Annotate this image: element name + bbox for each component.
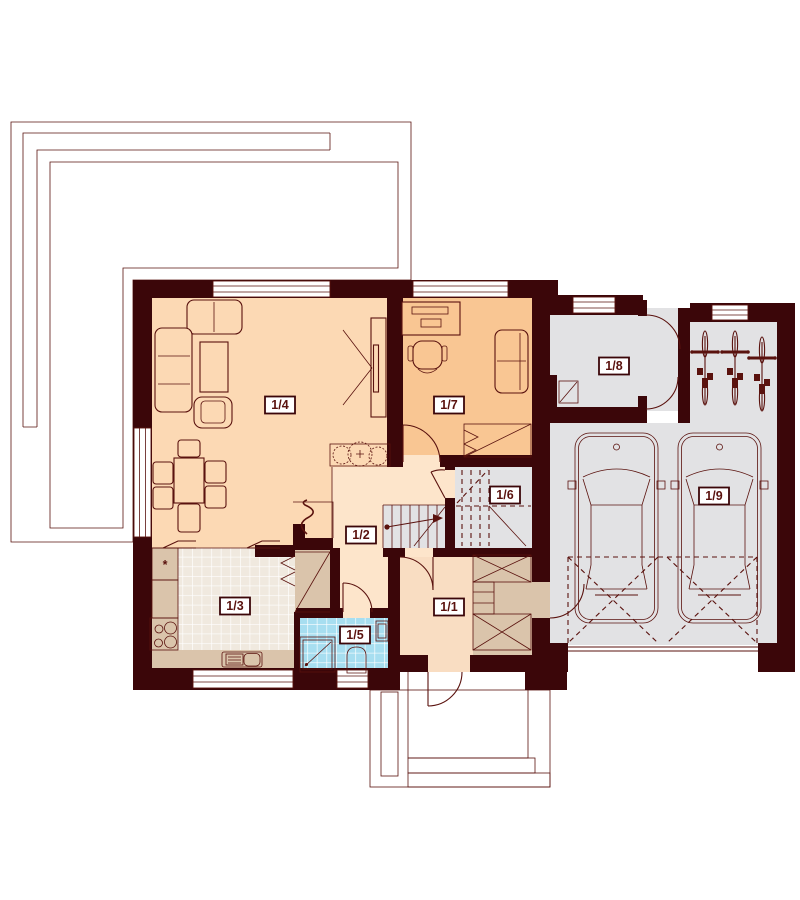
svg-text:1/9: 1/9 [705,489,722,503]
utility-window [573,297,615,313]
floor-plan-svg: * 1/1 1/2 1/3 1/4 1/5 1/6 1/7 [0,0,800,900]
coffee-table [200,342,228,392]
room-label-vestibule: 1/1 [434,599,464,616]
room-label-living-room: 1/4 [265,397,295,414]
svg-text:1/7: 1/7 [440,398,457,412]
svg-text:1/1: 1/1 [440,600,457,614]
svg-text:1/3: 1/3 [226,599,243,613]
office-window [413,281,508,297]
garage-door [568,647,758,651]
room-label-storage: 1/6 [490,487,520,504]
armchair [194,397,232,428]
svg-text:1/5: 1/5 [346,628,363,642]
garage-floor [550,423,777,645]
porch-slab [408,668,528,758]
floor-plan-page: * 1/1 1/2 1/3 1/4 1/5 1/6 1/7 [0,0,800,900]
desk [402,302,460,335]
porch-step [408,758,535,773]
kitchen-window [193,670,293,688]
room-label-kitchen: 1/3 [220,598,250,615]
bike-storage-window [712,305,748,320]
porch-column [381,692,398,776]
room-label-bathroom: 1/5 [340,627,370,644]
fridge-icon: * [163,558,168,572]
living-room-window [213,281,330,297]
porch-step [408,773,550,787]
svg-text:1/4: 1/4 [271,398,288,412]
office-sofa [495,330,528,393]
vestibule-closets-floor [473,557,532,655]
svg-text:1/6: 1/6 [496,488,513,502]
room-label-office: 1/7 [434,397,464,414]
room-label-hall: 1/2 [346,527,376,544]
room-label-garage: 1/9 [699,488,729,505]
terrace-side-window [134,428,151,537]
storage-1-6-floor [455,467,532,548]
svg-text:1/2: 1/2 [352,528,369,542]
front-door [428,672,462,706]
svg-text:1/8: 1/8 [605,359,622,373]
room-label-utility: 1/8 [599,358,629,375]
